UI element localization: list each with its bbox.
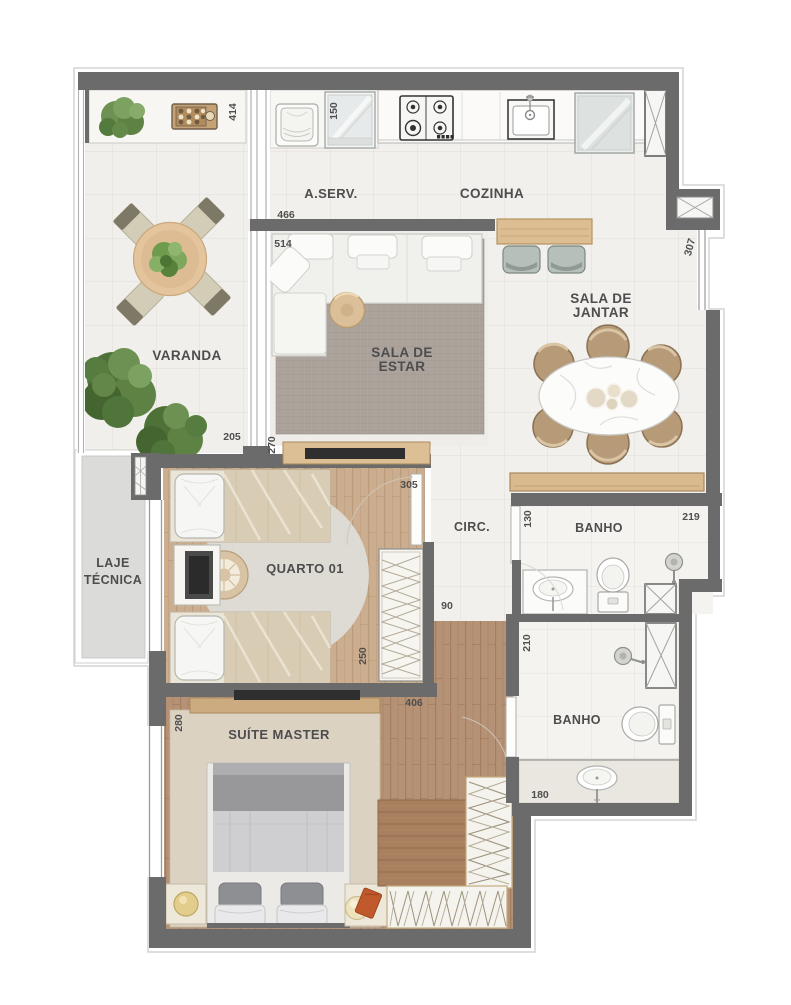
svg-text:ESTAR: ESTAR xyxy=(379,359,426,374)
svg-text:BANHO: BANHO xyxy=(553,713,601,727)
svg-text:210: 210 xyxy=(521,634,533,652)
svg-text:A.SERV.: A.SERV. xyxy=(304,186,357,201)
svg-text:COZINHA: COZINHA xyxy=(460,186,524,201)
svg-text:406: 406 xyxy=(405,697,423,709)
svg-text:VARANDA: VARANDA xyxy=(152,348,221,363)
svg-text:TÉCNICA: TÉCNICA xyxy=(84,572,142,587)
svg-text:280: 280 xyxy=(173,714,185,732)
svg-text:BANHO: BANHO xyxy=(575,521,623,535)
svg-text:270: 270 xyxy=(266,436,278,454)
svg-text:150: 150 xyxy=(328,102,340,120)
svg-text:90: 90 xyxy=(441,600,453,612)
svg-text:130: 130 xyxy=(522,510,534,528)
svg-text:SALA DE: SALA DE xyxy=(371,345,433,360)
svg-text:180: 180 xyxy=(531,789,549,801)
svg-text:JANTAR: JANTAR xyxy=(573,305,629,320)
svg-text:QUARTO 01: QUARTO 01 xyxy=(266,561,344,576)
svg-text:514: 514 xyxy=(274,238,292,250)
svg-text:305: 305 xyxy=(400,479,418,491)
svg-text:CIRC.: CIRC. xyxy=(454,520,490,534)
svg-text:414: 414 xyxy=(227,103,239,121)
svg-text:LAJE: LAJE xyxy=(96,556,130,570)
svg-text:SALA DE: SALA DE xyxy=(570,291,632,306)
svg-text:SUÍTE MASTER: SUÍTE MASTER xyxy=(228,727,330,742)
svg-text:250: 250 xyxy=(357,647,369,665)
svg-text:466: 466 xyxy=(277,209,295,221)
svg-text:219: 219 xyxy=(682,511,700,523)
svg-text:205: 205 xyxy=(223,431,241,443)
